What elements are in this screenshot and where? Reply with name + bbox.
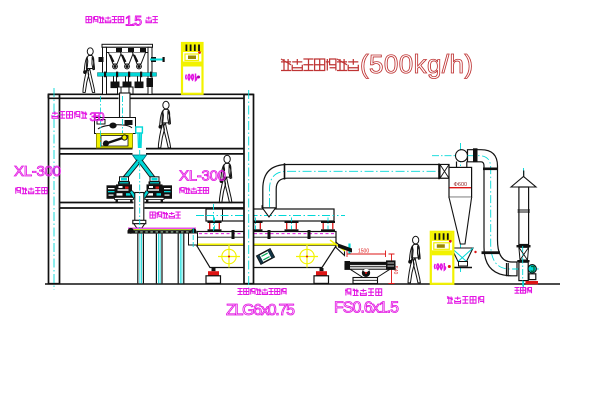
svg-text:1.5: 1.5 <box>125 13 142 29</box>
svg-text:ZLG6x0.75: ZLG6x0.75 <box>226 302 295 319</box>
svg-text:350: 350 <box>90 112 105 124</box>
svg-text:FS0.6x1.5: FS0.6x1.5 <box>334 300 399 317</box>
svg-text:1500: 1500 <box>358 249 369 255</box>
svg-text:XL-300: XL-300 <box>179 168 226 185</box>
svg-text:(500kg/h): (500kg/h) <box>360 49 473 79</box>
svg-text:XL-300: XL-300 <box>14 163 61 180</box>
